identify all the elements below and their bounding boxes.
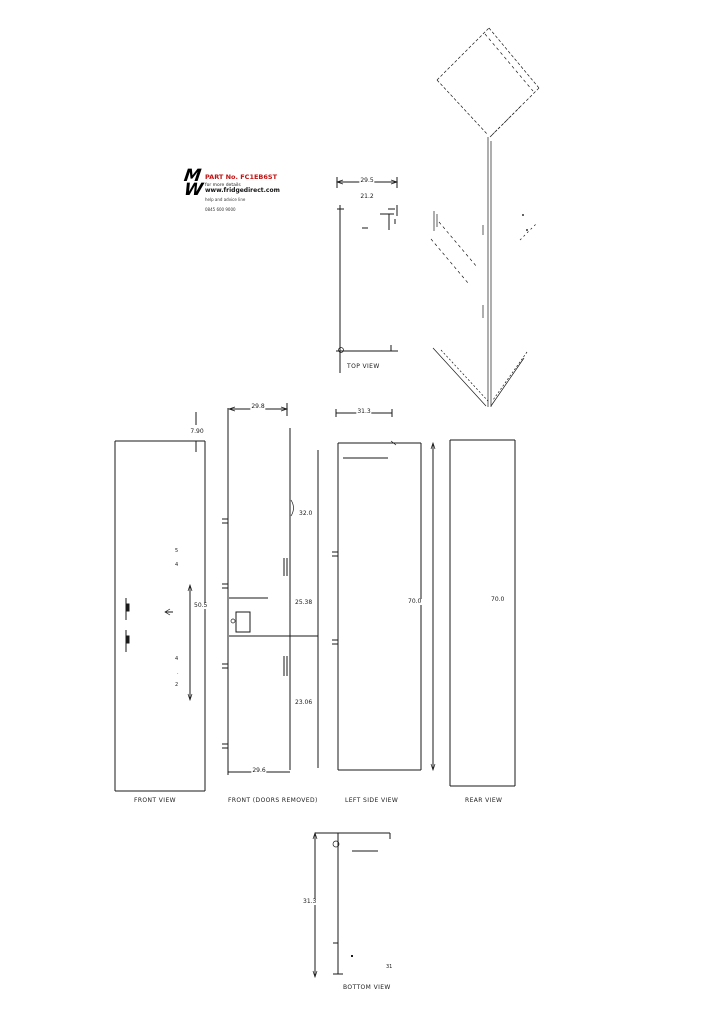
top-view-lines xyxy=(336,177,398,373)
doors-removed-dim-width-top: 29.8 xyxy=(250,404,265,410)
doors-removed-dim-width-bottom: 29.6 xyxy=(251,768,266,774)
rear-view-lines xyxy=(450,440,515,786)
doors-removed-lines xyxy=(222,403,318,775)
rear-view-title: REAR VIEW xyxy=(465,797,502,804)
vendor-text-block: PART No. FC1EB6ST for more details www.f… xyxy=(205,174,290,212)
top-view-title: TOP VIEW xyxy=(347,363,380,370)
left-side-view-title: LEFT SIDE VIEW xyxy=(345,797,398,804)
front-view-micro-3: 4 xyxy=(174,657,179,662)
front-view-micro-1: 5 xyxy=(174,549,179,554)
drawing-sheet: M W PART No. FC1EB6ST for more details w… xyxy=(0,0,720,1012)
left-side-dim-depth: 31.3 xyxy=(356,409,371,415)
top-view-dim-inner-width: 21.2 xyxy=(359,194,374,200)
doors-removed-dim-right-middle: 25.38 xyxy=(294,600,313,606)
front-view-micro-4: . xyxy=(176,671,180,676)
logo-phone: 0845 600 9000 xyxy=(205,207,290,212)
part-number: PART No. FC1EB6ST xyxy=(205,174,290,181)
isometric-view-lines xyxy=(431,28,539,407)
bottom-view-lines xyxy=(313,833,390,977)
bottom-view-note: 31 xyxy=(385,965,393,970)
vendor-monogram: M W xyxy=(184,170,204,198)
doors-removed-dim-right-upper: 32.0 xyxy=(298,511,313,517)
doors-removed-dim-right-lower: 23.06 xyxy=(294,700,313,706)
logo-website: www.fridgedirect.com xyxy=(205,188,290,195)
bottom-view-dim-depth: 31.3 xyxy=(302,899,317,905)
top-view-dim-width: 29.5 xyxy=(359,178,374,184)
logo-tagline-2: help and advice line xyxy=(205,197,290,202)
drawing-linework xyxy=(0,0,720,1012)
front-view-micro-5: 2 xyxy=(174,683,179,688)
front-view-micro-2: 4 xyxy=(174,563,179,568)
front-view-lines xyxy=(115,412,205,791)
bottom-view-title: BOTTOM VIEW xyxy=(343,984,391,991)
left-side-view-lines xyxy=(332,409,435,770)
front-view-title: FRONT VIEW xyxy=(134,797,176,804)
doors-removed-title: FRONT (DOORS REMOVED) xyxy=(228,797,318,804)
left-side-dim-height: 70.0 xyxy=(407,599,422,605)
monogram-w: W xyxy=(183,184,205,198)
rear-view-dim-height: 70.0 xyxy=(490,597,505,603)
front-view-dim-top: 7.90 xyxy=(189,429,204,435)
front-view-dim-height: 50.5 xyxy=(193,603,208,609)
